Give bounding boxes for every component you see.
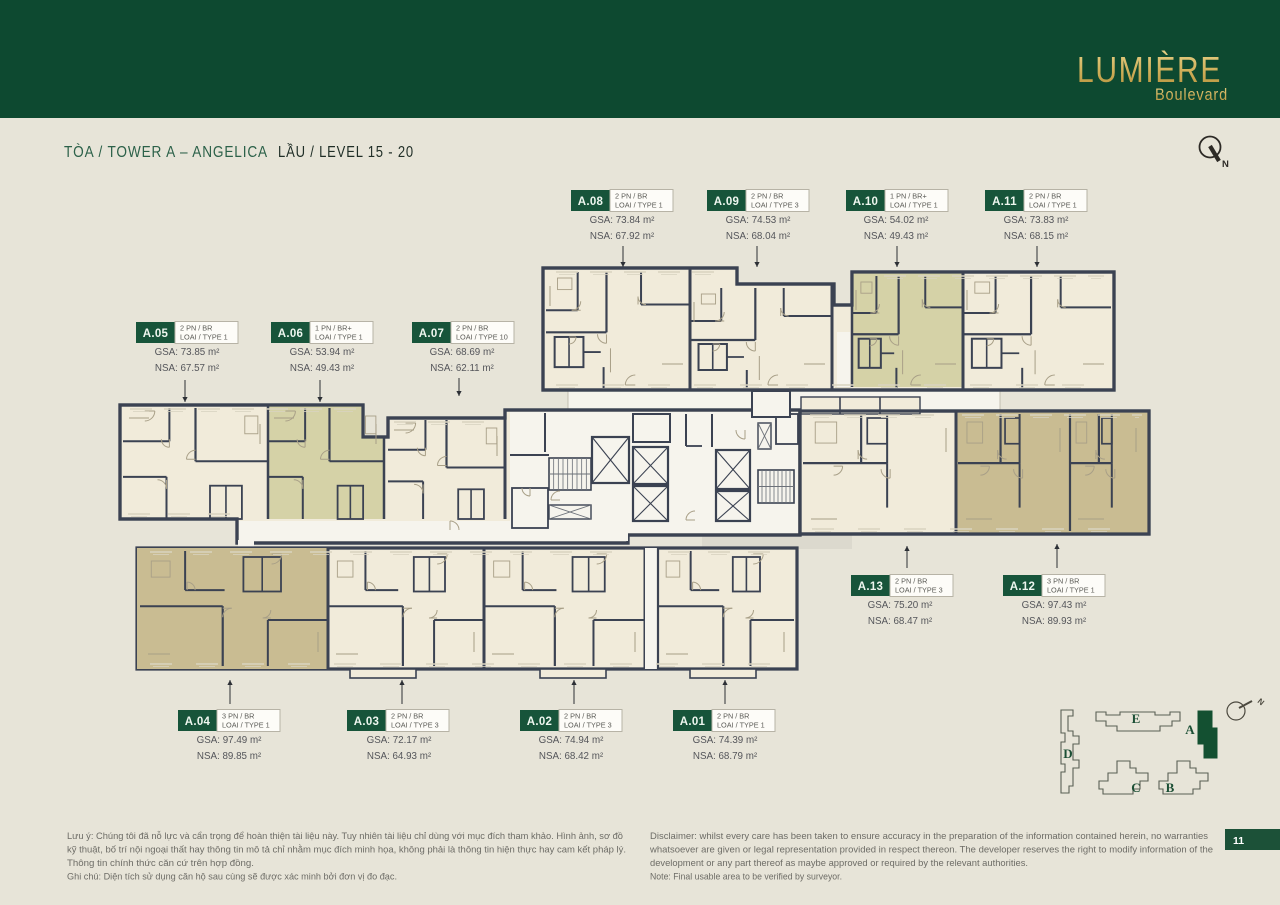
svg-text:LOAI / TYPE 3: LOAI / TYPE 3: [751, 201, 799, 210]
svg-text:NSA: 89.93 m²: NSA: 89.93 m²: [1022, 616, 1087, 627]
svg-text:A.07: A.07: [419, 328, 445, 340]
svg-text:LOAI / TYPE 3: LOAI / TYPE 3: [895, 586, 943, 595]
svg-text:A.11: A.11: [992, 196, 1017, 208]
svg-text:LOAI / TYPE 1: LOAI / TYPE 1: [315, 333, 363, 342]
svg-text:1 PN / BR+: 1 PN / BR+: [890, 192, 927, 201]
svg-text:E: E: [1132, 711, 1141, 726]
svg-text:GSA: 68.69 m²: GSA: 68.69 m²: [430, 347, 496, 358]
svg-text:NSA: 68.04 m²: NSA: 68.04 m²: [726, 231, 791, 242]
svg-text:1 PN / BR+: 1 PN / BR+: [315, 324, 352, 333]
svg-text:A.13: A.13: [858, 581, 884, 593]
svg-text:NSA: 68.42 m²: NSA: 68.42 m²: [539, 751, 604, 762]
svg-text:GSA: 73.84 m²: GSA: 73.84 m²: [590, 215, 656, 226]
svg-text:GSA: 97.43 m²: GSA: 97.43 m²: [1022, 600, 1088, 611]
svg-text:LOAI / TYPE 1: LOAI / TYPE 1: [615, 201, 663, 210]
svg-text:D: D: [1063, 746, 1072, 761]
svg-text:GSA: 54.02 m²: GSA: 54.02 m²: [864, 215, 930, 226]
svg-text:2 PN / BR: 2 PN / BR: [180, 324, 212, 333]
svg-text:B: B: [1166, 780, 1175, 795]
svg-text:A.01: A.01: [680, 716, 706, 728]
svg-text:GSA: 53.94 m²: GSA: 53.94 m²: [290, 347, 356, 358]
svg-text:Disclaimer: whilst every care: Disclaimer: whilst every care has been t…: [650, 831, 1208, 841]
svg-text:A.10: A.10: [853, 196, 879, 208]
svg-text:NSA: 49.43 m²: NSA: 49.43 m²: [864, 231, 929, 242]
svg-text:GSA: 73.85 m²: GSA: 73.85 m²: [155, 347, 221, 358]
svg-text:LOAI / TYPE 1: LOAI / TYPE 1: [1047, 586, 1095, 595]
svg-text:GSA: 97.49 m²: GSA: 97.49 m²: [197, 735, 263, 746]
svg-text:A.08: A.08: [578, 196, 604, 208]
svg-text:NSA: 64.93 m²: NSA: 64.93 m²: [367, 751, 432, 762]
svg-text:A.09: A.09: [714, 196, 740, 208]
svg-text:Note: Final usable area to be: Note: Final usable area to be verified b…: [650, 872, 842, 882]
svg-text:N: N: [1256, 697, 1266, 708]
svg-text:NSA: 68.79 m²: NSA: 68.79 m²: [693, 751, 758, 762]
svg-text:NSA: 67.92 m²: NSA: 67.92 m²: [590, 231, 655, 242]
svg-text:A: A: [1185, 722, 1195, 737]
svg-text:GSA: 75.20 m²: GSA: 75.20 m²: [868, 600, 934, 611]
svg-text:2 PN / BR: 2 PN / BR: [391, 712, 423, 721]
svg-text:LOAI / TYPE 10: LOAI / TYPE 10: [456, 333, 508, 342]
svg-text:C: C: [1131, 780, 1140, 795]
svg-text:NSA: 89.85 m²: NSA: 89.85 m²: [197, 751, 262, 762]
svg-text:Ghi chú: Diện tích sử dụng căn: Ghi chú: Diện tích sử dụng căn hộ sau cù…: [67, 872, 397, 882]
svg-text:Thông tin chính thức căn cứ tr: Thông tin chính thức căn cứ trên hợp đồn…: [67, 858, 254, 868]
svg-text:GSA: 72.17 m²: GSA: 72.17 m²: [367, 735, 433, 746]
svg-text:A.03: A.03: [354, 716, 380, 728]
svg-text:N: N: [1222, 159, 1229, 170]
svg-text:2 PN / BR: 2 PN / BR: [456, 324, 488, 333]
svg-text:A.06: A.06: [278, 328, 304, 340]
svg-text:LOAI / TYPE 1: LOAI / TYPE 1: [222, 721, 270, 730]
svg-text:3 PN / BR: 3 PN / BR: [1047, 577, 1079, 586]
svg-text:LOAI / TYPE 1: LOAI / TYPE 1: [890, 201, 938, 210]
svg-text:2 PN / BR: 2 PN / BR: [615, 192, 647, 201]
svg-text:kỹ thuật, bố trí nội ngoại thấ: kỹ thuật, bố trí nội ngoại thất hay thôn…: [67, 845, 626, 855]
svg-text:GSA: 74.94 m²: GSA: 74.94 m²: [539, 735, 605, 746]
svg-text:NSA: 68.15 m²: NSA: 68.15 m²: [1004, 231, 1069, 242]
svg-text:A.12: A.12: [1010, 581, 1036, 593]
svg-text:A.05: A.05: [143, 328, 169, 340]
svg-text:2 PN / BR: 2 PN / BR: [751, 192, 783, 201]
svg-text:LOAI / TYPE 1: LOAI / TYPE 1: [717, 721, 765, 730]
svg-text:LẦU / LEVEL 15 - 20: LẦU / LEVEL 15 - 20: [278, 142, 414, 161]
svg-text:NSA: 68.47 m²: NSA: 68.47 m²: [868, 616, 933, 627]
svg-text:LOAI / TYPE 1: LOAI / TYPE 1: [1029, 201, 1077, 210]
svg-text:NSA: 67.57 m²: NSA: 67.57 m²: [155, 363, 220, 374]
svg-text:11: 11: [1233, 835, 1244, 847]
svg-text:TÒA / TOWER A – ANGELICA: TÒA / TOWER A – ANGELICA: [64, 142, 268, 161]
svg-text:whatsoever are given or legal: whatsoever are given or legal representa…: [649, 845, 1213, 855]
svg-text:Boulevard: Boulevard: [1155, 85, 1228, 104]
svg-text:A.04: A.04: [185, 716, 211, 728]
svg-text:LOAI / TYPE 3: LOAI / TYPE 3: [564, 721, 612, 730]
svg-text:GSA: 74.39 m²: GSA: 74.39 m²: [693, 735, 759, 746]
svg-text:A.02: A.02: [527, 716, 553, 728]
svg-text:Lưu ý: Chúng tôi đã nỗ lực và: Lưu ý: Chúng tôi đã nỗ lực và cẩn trọng …: [67, 831, 623, 841]
svg-text:2 PN / BR: 2 PN / BR: [895, 577, 927, 586]
svg-text:NSA: 49.43 m²: NSA: 49.43 m²: [290, 363, 355, 374]
svg-text:LOAI / TYPE 3: LOAI / TYPE 3: [391, 721, 439, 730]
svg-text:LUMIÈRE: LUMIÈRE: [1077, 49, 1222, 90]
svg-text:NSA: 62.11 m²: NSA: 62.11 m²: [430, 363, 494, 374]
svg-text:development or any part thereo: development or any part thereof as maybe…: [650, 858, 1028, 868]
svg-text:2 PN / BR: 2 PN / BR: [1029, 192, 1061, 201]
svg-text:LOAI / TYPE 1: LOAI / TYPE 1: [180, 333, 228, 342]
svg-text:3 PN / BR: 3 PN / BR: [222, 712, 254, 721]
svg-text:2 PN / BR: 2 PN / BR: [564, 712, 596, 721]
svg-text:GSA: 74.53 m²: GSA: 74.53 m²: [726, 215, 792, 226]
svg-text:2 PN / BR: 2 PN / BR: [717, 712, 749, 721]
svg-text:GSA: 73.83 m²: GSA: 73.83 m²: [1004, 215, 1070, 226]
